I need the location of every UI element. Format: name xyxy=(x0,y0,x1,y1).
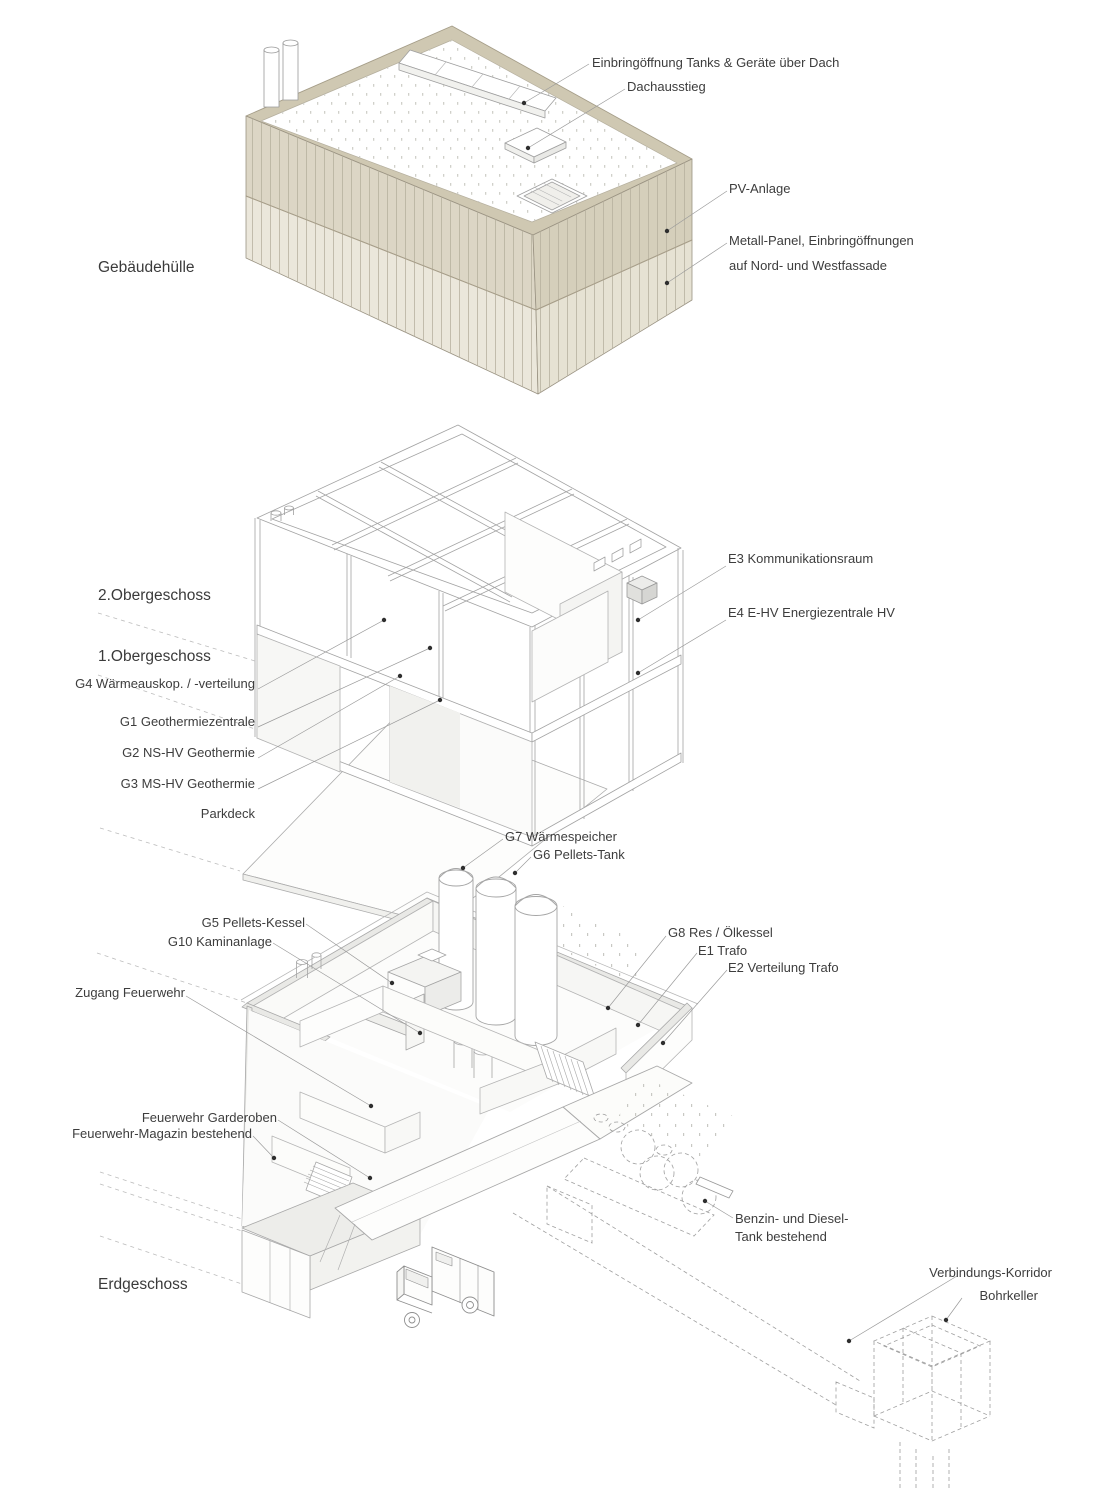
label-e2-verteilung-trafo: E2 Verteilung Trafo xyxy=(728,960,839,975)
label-benzin-line1: Benzin- und Diesel- xyxy=(735,1211,848,1226)
label-g8-oelkessel: G8 Res / Ölkessel xyxy=(668,925,773,940)
label-g5-pellets-kessel: G5 Pellets-Kessel xyxy=(202,915,305,930)
label-metall-panel-line2: auf Nord- und Westfassade xyxy=(729,258,914,273)
fire-truck xyxy=(397,1247,494,1328)
label-e1-trafo: E1 Trafo xyxy=(698,943,747,958)
equipment-cube xyxy=(627,576,657,604)
label-g2-ns-hv: G2 NS-HV Geothermie xyxy=(122,745,255,760)
label-feuerwehr-garderoben: Feuerwehr Garderoben xyxy=(142,1110,277,1125)
label-bohrkeller: Bohrkeller xyxy=(979,1288,1038,1303)
section-title-erdgeschoss: Erdgeschoss xyxy=(98,1276,188,1294)
label-g1-geothermiezentrale: G1 Geothermiezentrale xyxy=(120,714,255,729)
section-title-1og: 1.Obergeschoss xyxy=(98,648,211,666)
label-einbringoeffnung: Einbringöffnung Tanks & Geräte über Dach xyxy=(592,55,839,70)
section-title-envelope: Gebäudehülle xyxy=(98,259,195,277)
label-parkdeck: Parkdeck xyxy=(201,806,255,821)
label-e4-energiezentrale: E4 E-HV Energiezentrale HV xyxy=(728,605,895,620)
label-metall-panel: Metall-Panel, Einbringöffnungen auf Nord… xyxy=(729,233,914,273)
label-benzin-diesel-tank: Benzin- und Diesel- Tank bestehend xyxy=(735,1211,848,1244)
label-e3-kommunikationsraum: E3 Kommunikationsraum xyxy=(728,551,873,566)
label-g7-waermespeicher: G7 Wärmespeicher xyxy=(505,829,617,844)
tank-access-slab xyxy=(696,1177,733,1198)
label-benzin-line2: Tank bestehend xyxy=(735,1229,848,1244)
section-title-2og: 2.Obergeschoss xyxy=(98,587,211,605)
bohrkeller-box xyxy=(836,1316,990,1488)
building-envelope xyxy=(246,26,692,394)
label-g10-kaminanlage: G10 Kaminanlage xyxy=(168,934,272,949)
label-feuerwehr-magazin: Feuerwehr-Magazin bestehend xyxy=(72,1126,252,1141)
label-verbindungs-korridor: Verbindungs-Korridor xyxy=(929,1265,1052,1280)
label-dachausstieg: Dachausstieg xyxy=(627,79,706,94)
label-g6-pellets-tank: G6 Pellets-Tank xyxy=(533,847,625,862)
diagram-page: Gebäudehülle Einbringöffnung Tanks & Ger… xyxy=(0,0,1116,1488)
chimneys xyxy=(264,40,298,107)
label-pv-anlage: PV-Anlage xyxy=(729,181,790,196)
label-g4-waermeauskopplung: G4 Wärmeauskop. / -verteilung xyxy=(75,676,255,691)
ground-floor-structure xyxy=(241,869,735,1328)
underground-dashed xyxy=(513,1114,990,1488)
label-metall-panel-line1: Metall-Panel, Einbringöffnungen xyxy=(729,233,914,248)
label-zugang-feuerwehr: Zugang Feuerwehr xyxy=(75,985,185,1000)
label-g3-ms-hv: G3 MS-HV Geothermie xyxy=(121,776,255,791)
